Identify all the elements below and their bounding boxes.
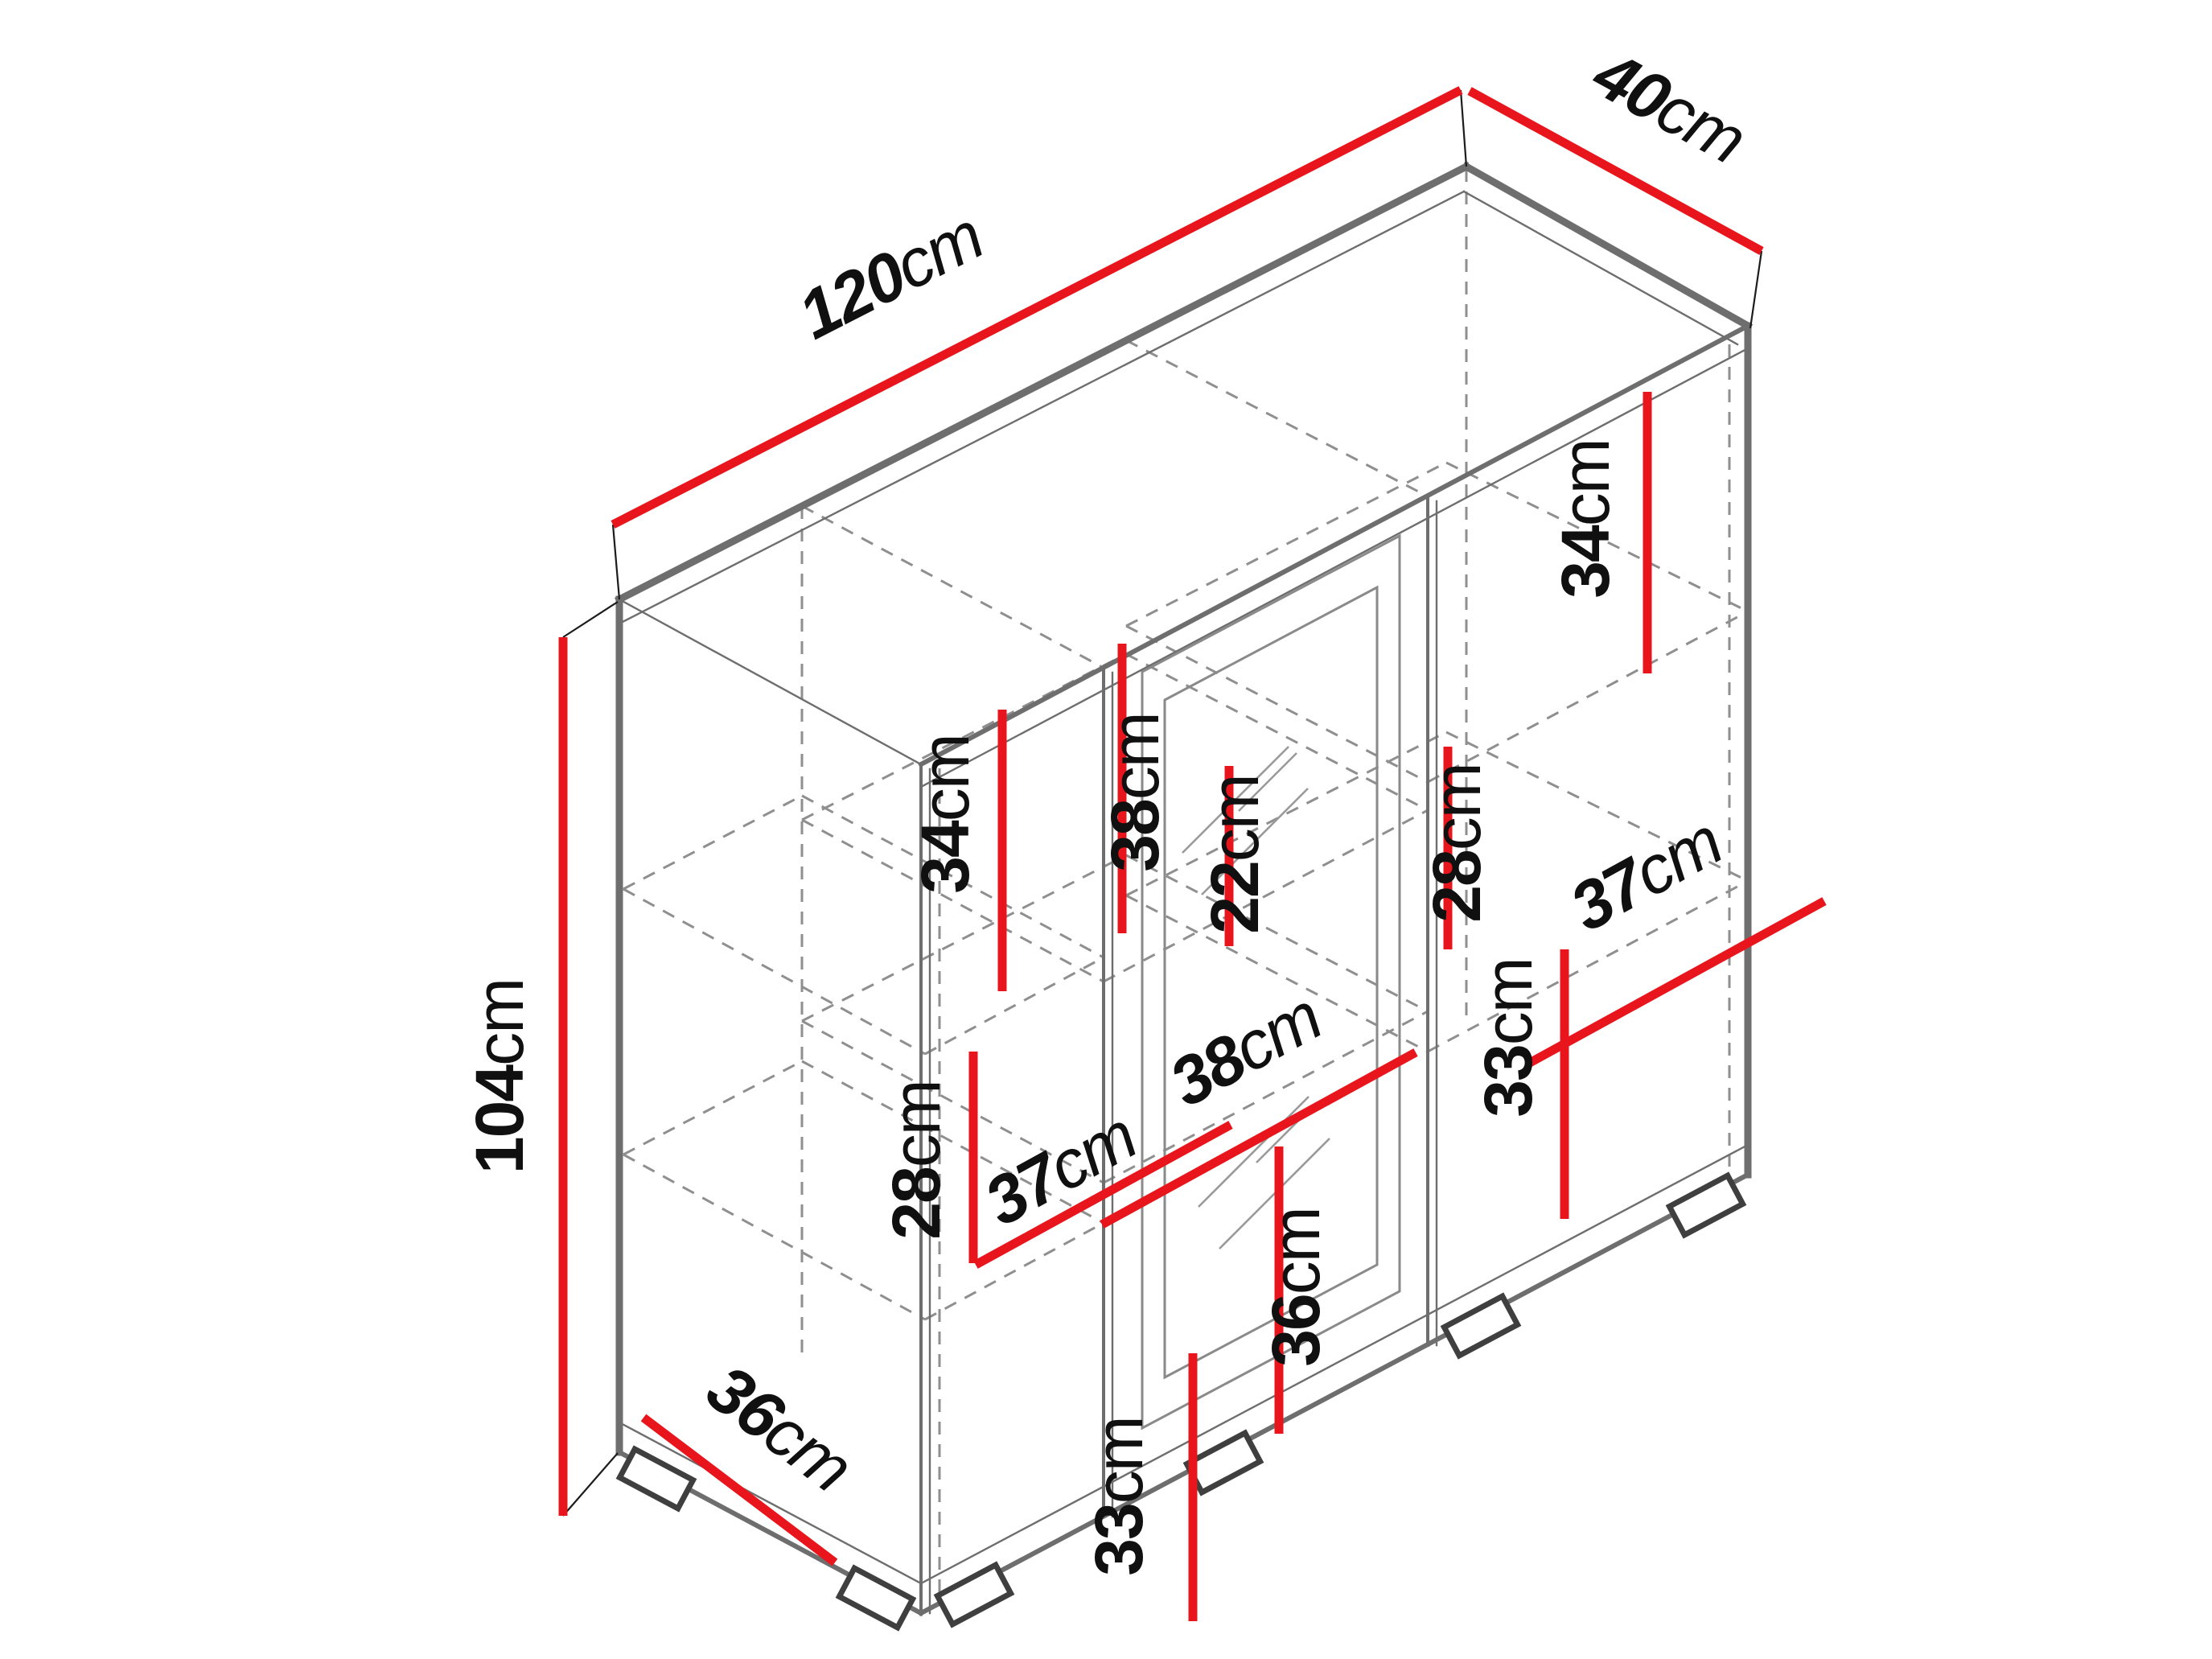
dimension-label-inner-38-center: 38cm — [1097, 713, 1173, 871]
dimension-label-inner-34-left: 34cm — [907, 735, 983, 893]
dimension-label-depth-40: 40cm — [1581, 35, 1758, 178]
dimension-label-inner-22-center: 22cm — [1197, 775, 1273, 933]
dimension-label-width-120: 120cm — [787, 197, 994, 353]
dimension-label-height-104: 104cm — [462, 979, 537, 1174]
dimension-label-inner-33-right: 33cm — [1470, 958, 1546, 1117]
dimension-line-width-120 — [613, 90, 1461, 525]
dimension-label-inner-33-left: 33cm — [1081, 1417, 1157, 1575]
diagram-page: 120cm40cm104cm34cm38cm22cm28cm37cm34cm28… — [0, 0, 2212, 1659]
dimension-label-inner-36-bottomleft: 36cm — [693, 1350, 865, 1506]
dimension-label-inner-28-left: 28cm — [878, 1081, 954, 1239]
dimension-label-inner-34-topright: 34cm — [1548, 439, 1623, 598]
dimension-label-inner-28-right: 28cm — [1419, 764, 1495, 922]
dimension-line-inner-37-right — [1528, 901, 1824, 1064]
dimension-label-inner-37-right: 37cm — [1558, 803, 1733, 945]
dimension-label-inner-36-center: 36cm — [1258, 1208, 1334, 1366]
furniture-dimension-diagram: 120cm40cm104cm34cm38cm22cm28cm37cm34cm28… — [0, 0, 2212, 1659]
